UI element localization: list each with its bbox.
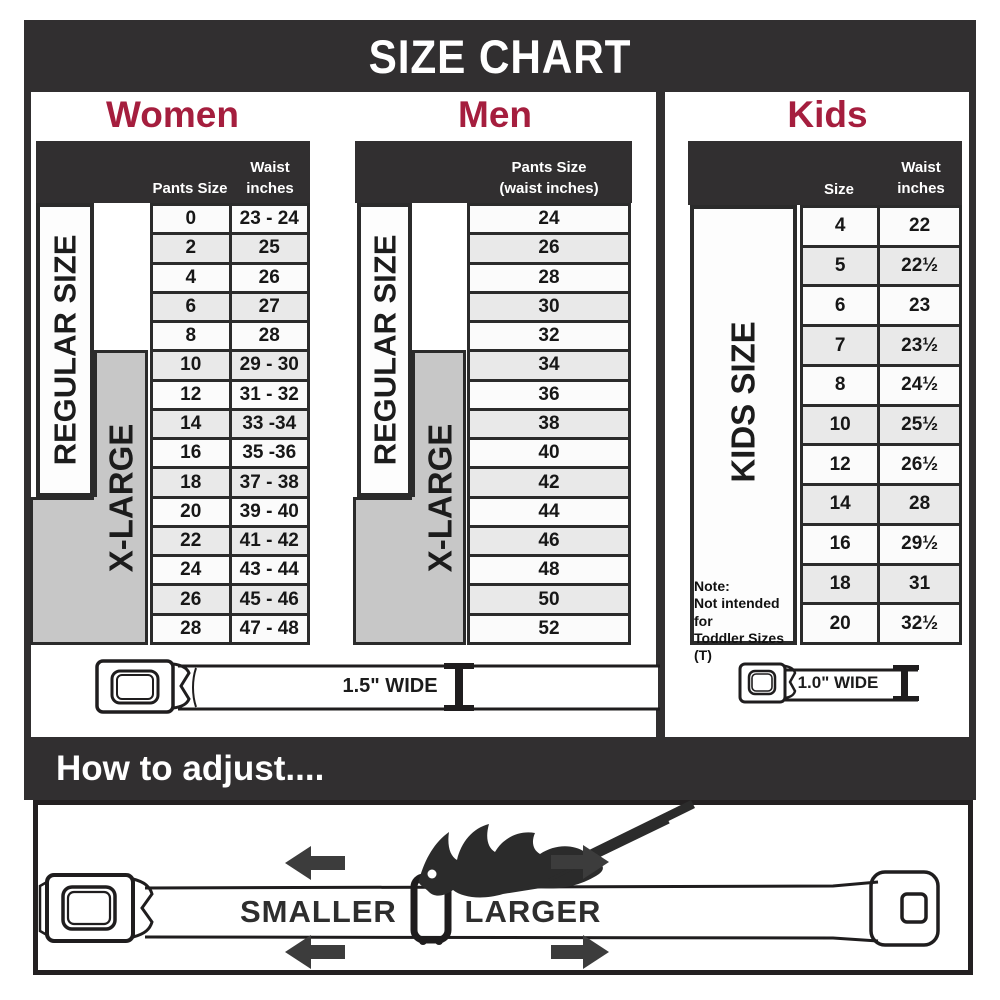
table-cell: 24 [153,557,229,583]
men-col-line2: (waist inches) [467,178,631,199]
table-cell: 8 [153,323,229,349]
table-cell: 42 [470,469,628,495]
women-col1-header: Pants Size [148,178,232,199]
table-cell: 32½ [880,605,959,642]
table-cell: 43 - 44 [232,557,308,583]
table-cell: 20 [153,499,229,525]
table-cell: 0 [153,206,229,232]
men-size-table: 242628303234363840424446485052 [467,203,631,645]
table-cell: 29½ [880,526,959,563]
table-cell: 28 [153,616,229,642]
men-heading: Men [400,94,590,136]
table-cell: 26 [153,586,229,612]
men-regular-label: REGULAR SIZE [367,235,403,466]
table-cell: 12 [153,382,229,408]
how-to-adjust-banner: How to adjust.... [24,737,976,800]
table-cell: 34 [470,352,628,378]
adult-belt-width-label: 1.5" WIDE [340,675,440,698]
how-to-adjust-heading: How to adjust.... [56,749,324,789]
table-cell: 28 [470,265,628,291]
table-cell: 28 [232,323,308,349]
size-chart-banner: SIZE CHART [24,20,976,92]
table-cell: 45 - 46 [232,586,308,612]
table-cell: 24½ [880,367,959,404]
table-cell: 25½ [880,407,959,444]
table-cell: 12 [803,446,877,483]
table-cell: 18 [803,566,877,603]
table-cell: 30 [470,294,628,320]
table-cell: 26 [232,265,308,291]
adjust-seatbelt-buckle-icon [47,875,133,941]
kids-col2-header: Waist inches [880,157,962,199]
men-col-header: Pants Size (waist inches) [467,157,631,199]
kids-note: Note: Not intended for Toddler Sizes (T) [694,578,800,665]
table-cell: 8 [803,367,877,404]
page-title: SIZE CHART [369,29,632,84]
table-cell: 16 [803,526,877,563]
table-cell: 6 [803,287,877,324]
table-cell: 5 [803,248,877,285]
table-cell: 20 [803,605,877,642]
kids-col2-line1: Waist [880,157,962,178]
kids-note-line1: Note: [694,578,800,595]
table-cell: 14 [153,411,229,437]
women-heading: Women [60,94,285,136]
table-cell: 18 [153,469,229,495]
table-cell: 48 [470,557,628,583]
table-cell: 47 - 48 [232,616,308,642]
size-chart-infographic: SIZE CHART Women Men Kids Pants Size Wai… [0,0,1000,1000]
men-xlarge-label: X-LARGE [421,424,459,573]
table-cell: 7 [803,327,877,364]
table-cell: 35 -36 [232,440,308,466]
table-cell: 37 - 38 [232,469,308,495]
kids-col1-header: Size [798,179,880,200]
larger-label: LARGER [462,894,604,930]
table-cell: 38 [470,411,628,437]
table-cell: 6 [153,294,229,320]
kids-heading: Kids [735,94,920,136]
table-cell: 31 [880,566,959,603]
table-cell: 4 [803,208,877,245]
women-regular-label: REGULAR SIZE [47,235,83,466]
kids-col2-line2: inches [880,178,962,199]
women-xlarge-box-joint [94,497,98,642]
kids-size-label: KIDS SIZE [725,321,763,482]
men-xlarge-box-joint [412,497,416,642]
table-cell: 36 [470,382,628,408]
women-col2-line1: Waist [230,157,310,178]
kids-seatbelt-buckle-icon [740,664,785,702]
table-cell: 41 - 42 [232,528,308,554]
frame-right-border [969,92,976,737]
smaller-label: SMALLER [240,894,385,930]
table-cell: 23 [880,287,959,324]
table-cell: 16 [153,440,229,466]
table-cell: 22 [153,528,229,554]
table-cell: 32 [470,323,628,349]
table-cell: 4 [153,265,229,291]
table-cell: 44 [470,499,628,525]
table-cell: 33 -34 [232,411,308,437]
table-cell: 24 [470,206,628,232]
table-cell: 29 - 30 [232,352,308,378]
table-cell: 31 - 32 [232,382,308,408]
women-size-table: 023 - 242254266278281029 - 301231 - 3214… [150,203,310,645]
table-cell: 23½ [880,327,959,364]
table-cell: 40 [470,440,628,466]
section-divider [656,92,665,737]
table-cell: 26½ [880,446,959,483]
table-cell: 52 [470,616,628,642]
kids-size-table: 422522½623723½824½1025½1226½14281629½183… [800,205,962,645]
table-cell: 10 [803,407,877,444]
table-cell: 22 [880,208,959,245]
table-cell: 28 [880,486,959,523]
adjust-diagram [33,800,973,975]
table-cell: 50 [470,586,628,612]
table-cell: 39 - 40 [232,499,308,525]
table-cell: 14 [803,486,877,523]
table-cell: 2 [153,235,229,261]
table-cell: 26 [470,235,628,261]
table-cell: 23 - 24 [232,206,308,232]
table-cell: 25 [232,235,308,261]
women-xlarge-label: X-LARGE [102,424,140,573]
table-cell: 10 [153,352,229,378]
table-cell: 46 [470,528,628,554]
men-col-line1: Pants Size [467,157,631,178]
women-col2-header: Waist inches [230,157,310,199]
belt-metal-tip-icon [871,872,938,945]
hand-icon [419,804,693,897]
table-cell: 27 [232,294,308,320]
table-cell: 22½ [880,248,959,285]
women-col2-line2: inches [230,178,310,199]
kids-note-line2: Not intended for [694,595,800,630]
kids-belt-width-label: 1.0" WIDE [792,673,884,693]
